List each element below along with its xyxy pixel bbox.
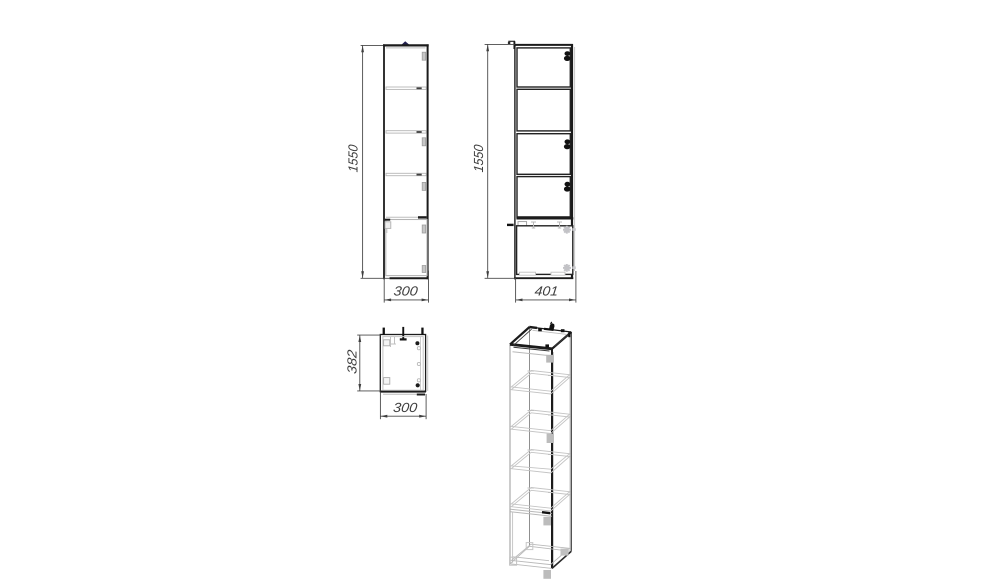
svg-text:1550: 1550	[346, 143, 361, 173]
svg-text:300: 300	[393, 284, 419, 299]
svg-text:300: 300	[392, 400, 418, 415]
svg-text:382: 382	[344, 348, 359, 374]
svg-text:401: 401	[534, 284, 559, 299]
svg-text:1550: 1550	[471, 143, 486, 173]
